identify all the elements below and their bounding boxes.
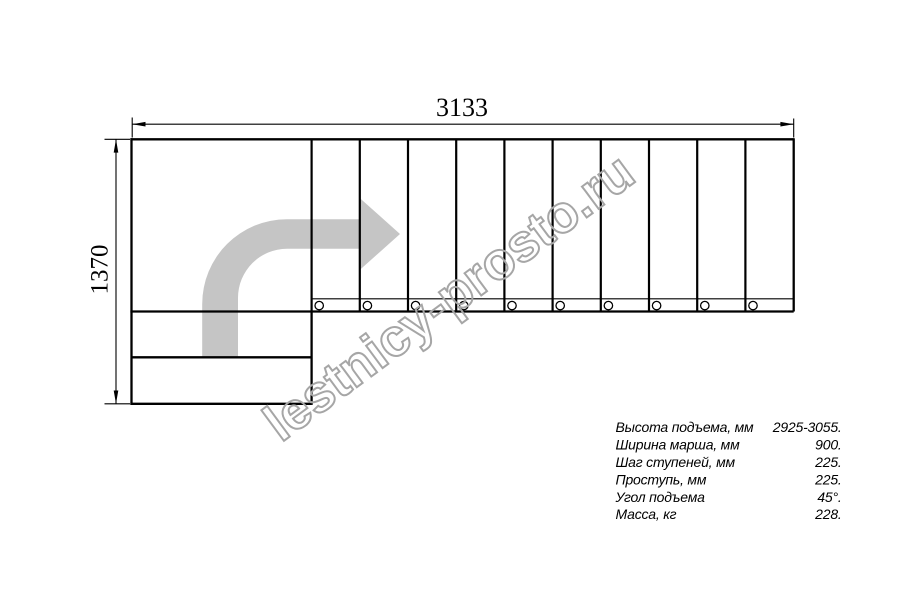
svg-text:Проступь, мм: Проступь, мм <box>616 471 707 487</box>
svg-text:Ширина марша, мм: Ширина марша, мм <box>616 437 741 453</box>
svg-text:Масса, кг: Масса, кг <box>616 506 677 522</box>
svg-text:225.: 225. <box>814 471 841 487</box>
svg-text:2925-3055.: 2925-3055. <box>772 419 842 435</box>
svg-text:900.: 900. <box>815 437 841 453</box>
svg-text:Высота подъема, мм: Высота подъема, мм <box>616 419 755 435</box>
svg-text:45°.: 45°. <box>817 489 841 505</box>
svg-text:Шаг ступеней, мм: Шаг ступеней, мм <box>616 454 736 470</box>
svg-text:1370: 1370 <box>87 245 114 295</box>
svg-text:228.: 228. <box>814 506 841 522</box>
svg-text:225.: 225. <box>814 454 841 470</box>
svg-text:Угол подъема: Угол подъема <box>615 489 706 505</box>
svg-text:3133: 3133 <box>436 93 488 122</box>
